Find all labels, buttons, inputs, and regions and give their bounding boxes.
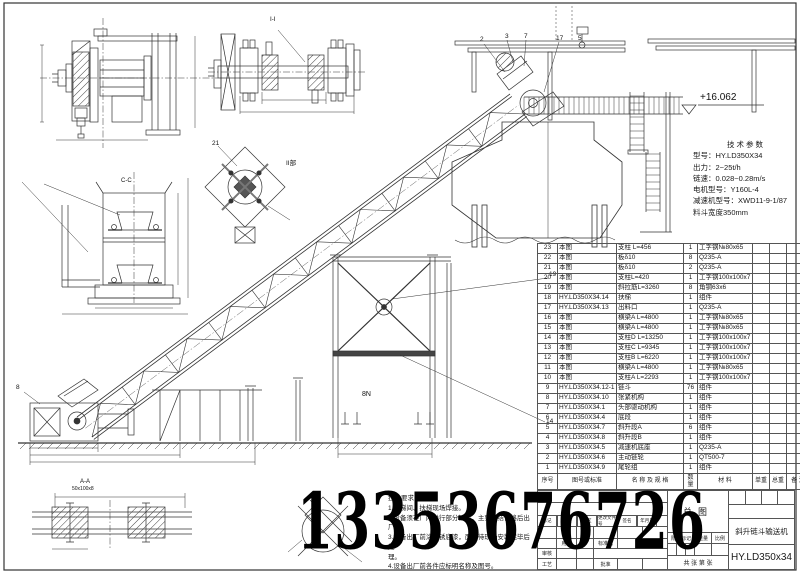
balloon-8: 8: [16, 385, 20, 392]
part-qty: 1: [684, 324, 698, 334]
part-unit-weight: [753, 444, 770, 454]
part-total-weight: [770, 384, 787, 394]
part-total-weight: [770, 394, 787, 404]
part-code: HY.LD350X34.5: [558, 444, 617, 454]
watermark-phone-number: 13353676726: [297, 484, 706, 562]
table-row: 4 HY.LD350X34.8 斜升段B 1 组件: [538, 434, 800, 444]
part-material: 组件: [698, 384, 753, 394]
part-remark: [787, 454, 800, 464]
top-middle-shaft-section: [208, 30, 366, 114]
part-material: 组件: [698, 414, 753, 424]
part-code: 本图: [558, 274, 617, 284]
part-remark: [787, 444, 800, 454]
header-total-weight: 总重: [770, 474, 787, 490]
table-row: 14 本图 支柱D L=13250 1 工字钢100x100x7: [538, 334, 800, 344]
part-unit-weight: [753, 394, 770, 404]
part-name: 板δ10: [617, 264, 684, 274]
part-total-weight: [770, 464, 787, 474]
part-name: 支柱B L=6220: [617, 354, 684, 364]
part-unit-weight: [753, 294, 770, 304]
part-no: 11: [538, 364, 558, 374]
part-qty: 1: [684, 314, 698, 324]
part-unit-weight: [753, 334, 770, 344]
part-code: HY.LD350X34.9: [558, 464, 617, 474]
part-name: 减速机底座: [617, 444, 684, 454]
part-name: 横梁A L=4800: [617, 324, 684, 334]
part-code: 本图: [558, 374, 617, 384]
part-qty: 6: [684, 424, 698, 434]
part-qty: 1: [684, 344, 698, 354]
table-row: 16 本图 横梁A L=4800 1 工字钢№80x65: [538, 314, 800, 324]
part-total-weight: [770, 374, 787, 384]
part-total-weight: [770, 304, 787, 314]
table-row: 21 本图 板δ10 2 Q235-A: [538, 264, 800, 274]
part-qty: 1: [684, 464, 698, 474]
tech-params-line: 出力：2~25t/h: [693, 162, 799, 173]
part-unit-weight: [753, 244, 770, 254]
part-no: 23: [538, 244, 558, 254]
part-name: 支柱A L=2293: [617, 374, 684, 384]
part-code: 本图: [558, 264, 617, 274]
part-remark: [787, 464, 800, 474]
part-qty: 1: [684, 434, 698, 444]
weld-note-label: 8N: [362, 391, 371, 398]
table-row: 5 HY.LD350X34.7 斜升段A 6 组件: [538, 424, 800, 434]
engineering-drawing-sheet: 技术参数 型号：HY.LD350X34出力：2~25t/h链速：0.028~0.…: [0, 0, 800, 573]
part-code: HY.LD350X34.8: [558, 434, 617, 444]
part-remark: [787, 314, 800, 324]
part-unit-weight: [753, 404, 770, 414]
table-row: 23 本图 支柱 L=456 1 工字钢№80x65: [538, 244, 800, 254]
part-material: 组件: [698, 434, 753, 444]
balloon-2: 2: [480, 37, 484, 44]
drawing-number: HY.LD350x34: [728, 544, 795, 570]
part-unit-weight: [753, 434, 770, 444]
intermediate-supports: [152, 378, 303, 441]
table-row: 6 HY.LD350X34.4 底段 1 组件: [538, 414, 800, 424]
part-no: 19: [538, 284, 558, 294]
tech-params-line: 料斗宽度350mm: [693, 207, 799, 218]
part-remark: [787, 254, 800, 264]
part-total-weight: [770, 344, 787, 354]
part-code: HY.LD350X34.7: [558, 424, 617, 434]
part-material: 工字钢100x100x7: [698, 374, 753, 384]
part-total-weight: [770, 244, 787, 254]
part-qty: 1: [684, 454, 698, 464]
part-remark: [787, 294, 800, 304]
part-no: 14: [538, 334, 558, 344]
part-code: 本图: [558, 344, 617, 354]
part-code: 本图: [558, 314, 617, 324]
part-material: Q235-A: [698, 254, 753, 264]
part-name: 底段: [617, 414, 684, 424]
rail-spec-label: 50x100x8: [72, 487, 94, 492]
part-material: Q235-A: [698, 264, 753, 274]
part-qty: 1: [684, 404, 698, 414]
part-total-weight: [770, 294, 787, 304]
part-name: 出料口: [617, 304, 684, 314]
section-ii-label: Ⅰ-Ⅰ: [270, 17, 276, 23]
part-unit-weight: [753, 354, 770, 364]
part-name: 尾轮组: [617, 464, 684, 474]
access-ladder: [628, 92, 672, 232]
part-code: HY.LD350X34.4: [558, 414, 617, 424]
part-remark: [787, 244, 800, 254]
part-total-weight: [770, 264, 787, 274]
part-total-weight: [770, 444, 787, 454]
part-unit-weight: [753, 304, 770, 314]
part-code: HY.LD350X34.14: [558, 294, 617, 304]
table-row: 12 本图 支柱B L=6220 1 工字钢100x100x7: [538, 354, 800, 364]
part-remark: [787, 364, 800, 374]
part-remark: [787, 354, 800, 364]
part-unit-weight: [753, 264, 770, 274]
part-qty: 76: [684, 384, 698, 394]
part-code: 本图: [558, 284, 617, 294]
tech-params-line: 链速：0.028~0.28m/s: [693, 173, 799, 184]
part-material: 组件: [698, 294, 753, 304]
part-name: 斜拉筋L=3260: [617, 284, 684, 294]
part-code: HY.LD350X34.13: [558, 304, 617, 314]
part-material: 工字钢№80x65: [698, 244, 753, 254]
table-row: 9 HY.LD350X34.12-1 链斗 76 组件: [538, 384, 800, 394]
parts-table-body: 23 本图 支柱 L=456 1 工字钢№80x65 22 本图 板δ10 8 …: [538, 244, 800, 474]
part-name: 扶梯: [617, 294, 684, 304]
part-no: 16: [538, 314, 558, 324]
part-remark: [787, 304, 800, 314]
header-unit-weight: 单重: [753, 474, 770, 490]
part-qty: 1: [684, 414, 698, 424]
part-qty: 2: [684, 264, 698, 274]
part-total-weight: [770, 274, 787, 284]
part-qty: 1: [684, 334, 698, 344]
part-qty: 8: [684, 284, 698, 294]
tech-params-line: 电机型号：Y160L-4: [693, 184, 799, 195]
part-name: 链斗: [617, 384, 684, 394]
table-row: 10 本图 支柱A L=2293 1 工字钢100x100x7: [538, 374, 800, 384]
part-total-weight: [770, 404, 787, 414]
table-row: 18 HY.LD350X34.14 扶梯 1 组件: [538, 294, 800, 304]
part-material: 组件: [698, 394, 753, 404]
part-unit-weight: [753, 274, 770, 284]
part-total-weight: [770, 334, 787, 344]
part-qty: 1: [684, 354, 698, 364]
part-code: HY.LD350X34.12-1: [558, 384, 617, 394]
part-total-weight: [770, 314, 787, 324]
part-remark: [787, 414, 800, 424]
part-code: 本图: [558, 254, 617, 264]
part-unit-weight: [753, 454, 770, 464]
balloon-7: 7: [524, 34, 528, 41]
balloon-17: 17: [556, 36, 563, 43]
part-code: HY.LD350X34.1: [558, 404, 617, 414]
table-row: 7 HY.LD350X34.1 头部驱动机构 1 组件: [538, 404, 800, 414]
part-name: 斜升段A: [617, 424, 684, 434]
part-name: 板δ10: [617, 254, 684, 264]
part-qty: 1: [684, 304, 698, 314]
part-remark: [787, 434, 800, 444]
part-no: 21: [538, 264, 558, 274]
conveyor-truss: [77, 94, 527, 439]
part-remark: [787, 344, 800, 354]
support-tower: [330, 255, 548, 458]
part-code: HY.LD350X34.10: [558, 394, 617, 404]
table-row: 13 本图 支柱C L=9345 1 工字钢100x100x7: [538, 344, 800, 354]
part-remark: [787, 384, 800, 394]
part-total-weight: [770, 454, 787, 464]
parts-table: 23 本图 支柱 L=456 1 工字钢№80x65 22 本图 板δ10 8 …: [537, 243, 800, 490]
part-name: 支柱L=420: [617, 274, 684, 284]
part-remark: [787, 404, 800, 414]
section-cc-label: C-C: [121, 178, 132, 184]
part-name: 斜升段B: [617, 434, 684, 444]
part-qty: 1: [684, 394, 698, 404]
part-name: 支柱C L=9345: [617, 344, 684, 354]
table-row: 11 本图 横梁A L=4800 1 工字钢№80x65: [538, 364, 800, 374]
part-qty: 1: [684, 244, 698, 254]
balloon-5: 5: [578, 36, 582, 43]
part-no: 20: [538, 274, 558, 284]
section-aa-label: A-A: [80, 479, 90, 485]
part-qty: 1: [684, 274, 698, 284]
section-aa-view: [32, 493, 192, 549]
part-no: 22: [538, 254, 558, 264]
part-no: 2: [538, 454, 558, 464]
part-unit-weight: [753, 374, 770, 384]
table-row: 1 HY.LD350X34.9 尾轮组 1 组件: [538, 464, 800, 474]
part-no: 13: [538, 344, 558, 354]
part-unit-weight: [753, 364, 770, 374]
part-remark: [787, 374, 800, 384]
part-unit-weight: [753, 424, 770, 434]
part-no: 10: [538, 374, 558, 384]
part-material: Q235-A: [698, 444, 753, 454]
product-name: 斜升链斗输送机: [728, 518, 795, 545]
part-no: 12: [538, 354, 558, 364]
tech-params-line: 型号：HY.LD350X34: [693, 150, 799, 161]
section-cc-view: [22, 172, 188, 314]
part-total-weight: [770, 424, 787, 434]
part-name: 横梁A L=4800: [617, 314, 684, 324]
part-no: 1: [538, 464, 558, 474]
part-name: 横梁A L=4800: [617, 364, 684, 374]
part-unit-weight: [753, 324, 770, 334]
table-row: 8 HY.LD350X34.10 张紧机构 1 组件: [538, 394, 800, 404]
part-remark: [787, 424, 800, 434]
part-code: 本图: [558, 354, 617, 364]
tech-params-title: 技术参数: [693, 139, 799, 150]
part-qty: 1: [684, 364, 698, 374]
table-row: 22 本图 板δ10 8 Q235-A: [538, 254, 800, 264]
part-material: 组件: [698, 424, 753, 434]
part-code: 本图: [558, 364, 617, 374]
part-material: 工字钢100x100x7: [698, 354, 753, 364]
part-total-weight: [770, 434, 787, 444]
part-code: 本图: [558, 334, 617, 344]
part-no: 5: [538, 424, 558, 434]
part-name: 支柱 L=456: [617, 244, 684, 254]
part-unit-weight: [753, 254, 770, 264]
part-no: 15: [538, 324, 558, 334]
part-no: 8: [538, 394, 558, 404]
part-no: 17: [538, 304, 558, 314]
part-remark: [787, 394, 800, 404]
part-remark: [787, 264, 800, 274]
part-total-weight: [770, 324, 787, 334]
part-no: 9: [538, 384, 558, 394]
balloon-3: 3: [505, 34, 509, 41]
part-unit-weight: [753, 384, 770, 394]
part-total-weight: [770, 284, 787, 294]
detail-ii-label: II部: [286, 161, 296, 168]
part-qty: 1: [684, 374, 698, 384]
part-material: 工字钢100x100x7: [698, 274, 753, 284]
balloon-21: 21: [212, 141, 219, 148]
part-material: 组件: [698, 404, 753, 414]
part-name: 头部驱动机构: [617, 404, 684, 414]
table-row: 17 HY.LD350X34.13 出料口 1 Q235-A: [538, 304, 800, 314]
table-row: 20 本图 支柱L=420 1 工字钢100x100x7: [538, 274, 800, 284]
part-no: 18: [538, 294, 558, 304]
tech-params-lines: 型号：HY.LD350X34出力：2~25t/h链速：0.028~0.28m/s…: [693, 150, 799, 218]
part-unit-weight: [753, 344, 770, 354]
part-total-weight: [770, 254, 787, 264]
table-row: 15 本图 横梁A L=4800 1 工字钢№80x65: [538, 324, 800, 334]
tech-params-block: 技术参数 型号：HY.LD350X34出力：2~25t/h链速：0.028~0.…: [693, 139, 799, 218]
part-material: 工字钢100x100x7: [698, 344, 753, 354]
part-material: 工字钢№80x65: [698, 364, 753, 374]
part-total-weight: [770, 364, 787, 374]
part-material: QT500-7: [698, 454, 753, 464]
part-total-weight: [770, 354, 787, 364]
part-no: 7: [538, 404, 558, 414]
detail-ii-view: [205, 146, 290, 243]
part-unit-weight: [753, 314, 770, 324]
table-row: 19 本图 斜拉筋L=3260 8 角钢63x6: [538, 284, 800, 294]
part-code: 本图: [558, 324, 617, 334]
part-qty: 1: [684, 444, 698, 454]
part-code: 本图: [558, 244, 617, 254]
elevation-top-label: +16.062: [700, 93, 736, 103]
part-qty: 8: [684, 254, 698, 264]
table-row: 2 HY.LD350X34.6 主动链轮 1 QT500-7: [538, 454, 800, 464]
part-material: 工字钢100x100x7: [698, 334, 753, 344]
part-no: 4: [538, 434, 558, 444]
part-name: 张紧机构: [617, 394, 684, 404]
part-remark: [787, 284, 800, 294]
part-material: 工字钢№80x65: [698, 324, 753, 334]
part-name: 支柱D L=13250: [617, 334, 684, 344]
part-remark: [787, 274, 800, 284]
part-no: 3: [538, 444, 558, 454]
part-unit-weight: [753, 414, 770, 424]
part-code: HY.LD350X34.6: [558, 454, 617, 464]
table-row: 3 HY.LD350X34.5 减速机底座 1 Q235-A: [538, 444, 800, 454]
part-no: 6: [538, 414, 558, 424]
part-material: 工字钢№80x65: [698, 314, 753, 324]
part-material: 角钢63x6: [698, 284, 753, 294]
part-name: 主动链轮: [617, 454, 684, 464]
part-remark: [787, 324, 800, 334]
part-qty: 1: [684, 294, 698, 304]
header-remark: 备 注: [787, 474, 800, 490]
part-material: 组件: [698, 464, 753, 474]
part-unit-weight: [753, 284, 770, 294]
top-left-drive-view: [40, 18, 218, 148]
part-material: Q235-A: [698, 304, 753, 314]
tech-params-line: 减速机型号：XWD11-9-1/87: [693, 195, 799, 206]
part-remark: [787, 334, 800, 344]
part-unit-weight: [753, 464, 770, 474]
part-total-weight: [770, 414, 787, 424]
